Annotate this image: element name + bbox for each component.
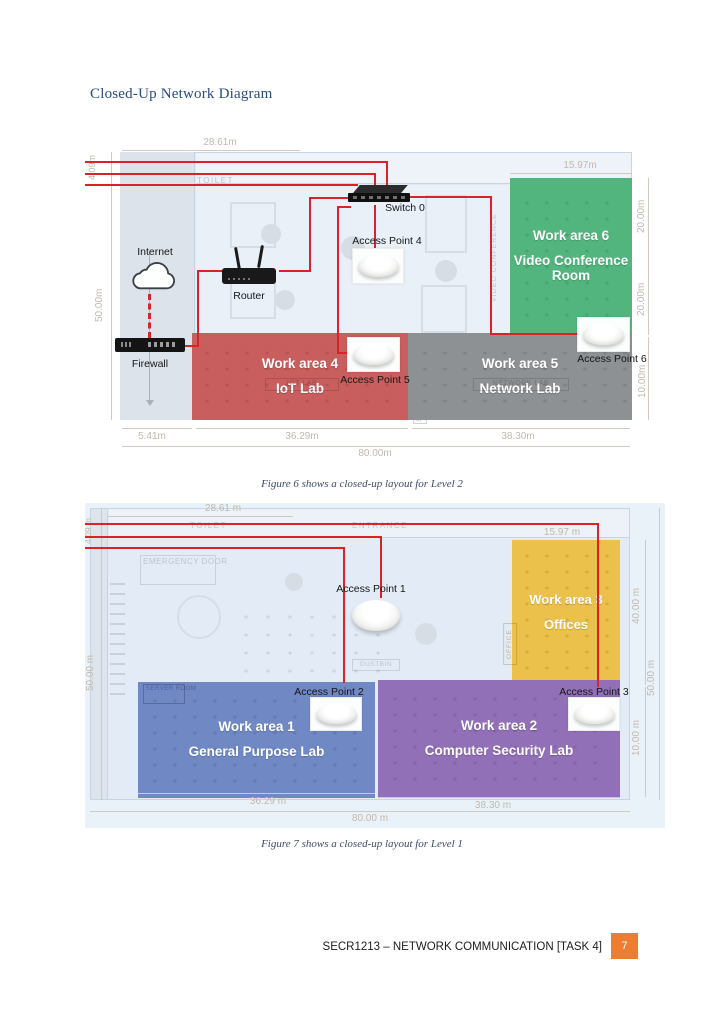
cable-switch-ap5-v: [337, 206, 339, 354]
cable-trunk-1: [85, 523, 599, 525]
access-point-1-icon: [352, 600, 400, 631]
cable-trunk-3: [85, 547, 345, 549]
stairs: [110, 583, 125, 698]
room-subtitle: Video Conference Room: [510, 254, 632, 284]
dim-line: [510, 173, 632, 174]
cable-internet-firewall-dashed: [148, 294, 151, 338]
footer-course-code: SECR1213 – NETWORK COMMUNICATION [TASK 4…: [323, 941, 602, 953]
internet-label: Internet: [125, 246, 185, 258]
dim-offices-width: 15.97 m: [522, 527, 602, 538]
dim-line: [122, 150, 300, 151]
dim-line: [108, 516, 293, 517]
ap6-label: Access Point 6: [572, 353, 652, 365]
furniture-round-table: [177, 595, 221, 639]
dim-line: [378, 797, 620, 798]
room-name: Work area 3: [529, 593, 602, 607]
cable-switch-ap6-v: [490, 196, 492, 335]
cable-switch-ap6-h1: [408, 196, 492, 198]
room-name: Work area 5: [482, 357, 558, 372]
dim-line: [122, 428, 192, 429]
cable-router-switch-h: [309, 197, 350, 199]
ap4-label: Access Point 4: [348, 235, 426, 247]
figure-6-caption: Figure 6 shows a closed-up layout for Le…: [0, 478, 724, 490]
dim-line: [90, 811, 630, 812]
dim-bottom-right: 38.30m: [478, 431, 558, 442]
room-name: Work area 2: [461, 719, 537, 734]
room-subtitle: Offices: [544, 618, 588, 632]
dim-right-upper: 40.00 m: [631, 583, 642, 629]
dim-bottom-total: 80.00 m: [330, 813, 410, 824]
dim-left-top: 4.09 m: [83, 511, 93, 551]
dim-bottom-left: 36.29 m: [228, 796, 308, 807]
ap1-label: Access Point 1: [332, 583, 410, 595]
cable-firewall-router-v: [197, 270, 199, 347]
cable-firewall-router-h: [197, 270, 224, 272]
emergency-door-label: EMERGENCY DOOR: [140, 555, 216, 585]
dim-right-lower: 10.00 m: [631, 715, 642, 761]
switch-label: Switch 0: [375, 202, 435, 214]
ap3-label: Access Point 3: [555, 686, 633, 698]
dim-line: [111, 152, 112, 420]
switch-front-face: [348, 193, 410, 202]
room-work-area-3: Work area 3 Offices: [512, 540, 620, 685]
level1-diagram: TOILET ENTRANCE EMERGENCY DOOR DUSTBIN W…: [85, 503, 665, 828]
dim-right-upper: 20.00m: [636, 195, 647, 237]
cable-trunk-1: [85, 161, 388, 163]
dim-line: [412, 428, 630, 429]
ap2-label: Access Point 2: [290, 686, 368, 698]
cable-ap2-drop: [343, 547, 345, 683]
video-conference-label: VIDEO CONFERENCE: [491, 216, 498, 302]
room-work-area-6: Work area 6 Video Conference Room: [510, 178, 632, 335]
access-point-5-icon: [347, 337, 400, 372]
dim-bottom-left: 5.41m: [117, 431, 187, 442]
dim-left-top: 4.09m: [87, 148, 97, 186]
dim-left-height: 50.00m: [94, 280, 105, 330]
dim-line: [648, 178, 649, 335]
dim-line: [101, 508, 102, 800]
router-label: Router: [222, 290, 276, 302]
office-label: OFFICE: [503, 623, 517, 665]
level2-diagram: TOILET VIDEO CONFERENCE SERVER ROOM SERV…: [85, 140, 665, 470]
document-page: Closed-Up Network Diagram TOILET VIDEO C…: [0, 0, 724, 1024]
room-name: Work area 1: [218, 720, 294, 735]
dim-right-bottom: 10.00m: [637, 360, 648, 402]
ap-disc: [583, 324, 625, 345]
footer-page-number: 7: [611, 933, 638, 959]
internet-cloud-icon: [130, 261, 180, 299]
ap5-label: Access Point 5: [336, 374, 414, 386]
iot-lab-floor-label: IOT LAB: [265, 378, 339, 391]
access-point-6-icon: [577, 317, 630, 352]
cable-trunk-2: [85, 173, 376, 175]
dim-right-outer: 50.00 m: [646, 655, 657, 701]
ap-disc: [353, 344, 395, 365]
dim-top-width: 28.61m: [180, 137, 260, 148]
dim-bottom-right: 38.30 m: [453, 800, 533, 811]
cable-ap3-drop: [597, 523, 599, 687]
dim-line: [138, 793, 375, 794]
access-point-2-icon: [310, 697, 362, 731]
room-name: Work area 4: [262, 357, 338, 372]
dim-line: [659, 508, 660, 800]
furniture-chair: [285, 573, 303, 591]
dim-line: [648, 337, 649, 420]
dim-bottom-mid: 36.29m: [262, 431, 342, 442]
cable-switch-ap6-h2: [490, 333, 580, 335]
ap-disc: [316, 704, 357, 724]
dim-left-height: 50.00 m: [85, 648, 96, 698]
furniture-chair: [415, 623, 437, 645]
guide-arrow-icon: [146, 400, 154, 406]
server-room-label: SERVER ROOM: [143, 684, 185, 704]
dim-line: [122, 446, 630, 447]
firewall-label: Firewall: [115, 358, 185, 370]
dim-line: [196, 428, 408, 429]
cable-trunk-3: [85, 184, 358, 186]
dim-right-lower: 20.00m: [636, 278, 647, 320]
page-title: Closed-Up Network Diagram: [90, 86, 272, 103]
access-point-3-icon: [568, 697, 620, 731]
furniture-table: [421, 285, 467, 333]
dim-top-width: 28.61 m: [183, 503, 263, 514]
network-lab-floor-label: NETWORK LAB: [473, 378, 569, 391]
firewall-icon: [115, 338, 185, 352]
room-subtitle: General Purpose Lab: [189, 745, 325, 760]
room-subtitle: Computer Security Lab: [425, 744, 574, 759]
room-name: Work area 6: [533, 229, 609, 244]
furniture-chair: [275, 290, 295, 310]
cable-router-switch-v: [309, 197, 311, 272]
dim-conference-width: 15.97m: [540, 160, 620, 171]
dim-bottom-total: 80.00m: [335, 448, 415, 459]
cable-switch-ap5-h1: [337, 206, 351, 208]
cable-trunk-2: [85, 536, 382, 538]
furniture-chair: [435, 260, 457, 282]
cable-router-in: [279, 270, 311, 272]
ap-disc: [358, 255, 399, 277]
furniture-chair: [261, 224, 281, 244]
figure-7-caption: Figure 7 shows a closed-up layout for Le…: [0, 838, 724, 850]
access-point-4-icon: [352, 248, 404, 284]
dim-line: [645, 687, 646, 797]
ap-disc: [574, 704, 615, 724]
router-icon: [222, 268, 276, 284]
